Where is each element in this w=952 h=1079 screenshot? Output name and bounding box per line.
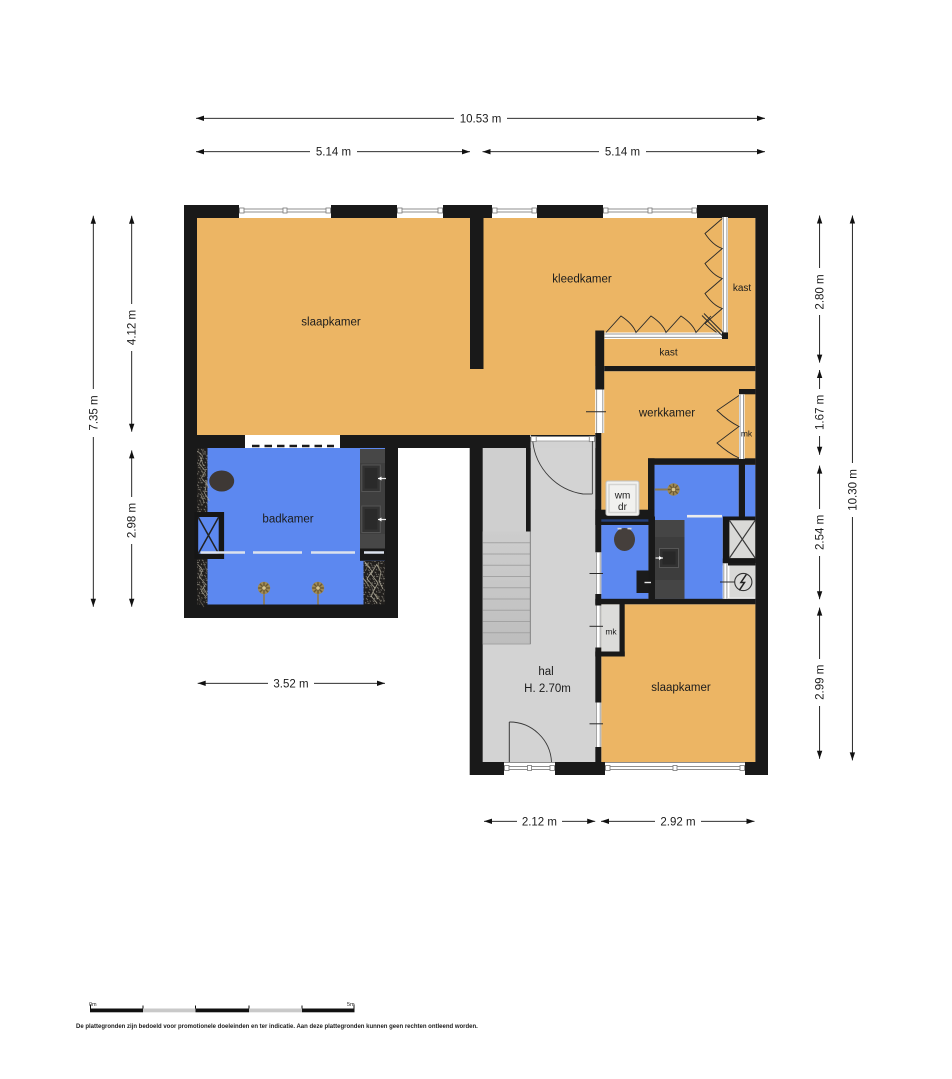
svg-text:kast: kast	[659, 348, 678, 359]
svg-text:dr: dr	[618, 502, 628, 513]
svg-text:2.80 m: 2.80 m	[815, 274, 827, 309]
svg-text:werkkamer: werkkamer	[638, 408, 695, 420]
svg-text:7.35 m: 7.35 m	[88, 395, 100, 430]
svg-text:5m: 5m	[347, 1002, 355, 1008]
svg-text:5.14 m: 5.14 m	[605, 147, 640, 159]
svg-text:wm: wm	[614, 491, 631, 502]
svg-text:3.52 m: 3.52 m	[273, 678, 308, 690]
svg-text:slaapkamer: slaapkamer	[301, 317, 361, 329]
svg-text:5.14 m: 5.14 m	[316, 147, 351, 159]
svg-text:kleedkamer: kleedkamer	[552, 274, 612, 286]
svg-text:A·BO: A·BO	[199, 598, 208, 602]
svg-text:H. 2.70m: H. 2.70m	[524, 683, 571, 695]
svg-text:De plattegronden zijn bedoeld: De plattegronden zijn bedoeld voor promo…	[76, 1024, 478, 1030]
svg-text:0m: 0m	[89, 1002, 97, 1008]
svg-text:badkamer: badkamer	[262, 514, 313, 526]
svg-text:slaapkamer: slaapkamer	[651, 682, 711, 694]
svg-text:2.12 m: 2.12 m	[522, 816, 557, 828]
svg-text:10.53 m: 10.53 m	[460, 113, 502, 125]
svg-text:mk: mk	[605, 627, 617, 637]
svg-text:hal: hal	[538, 666, 553, 678]
svg-text:4.12 m: 4.12 m	[127, 310, 139, 345]
svg-text:2.54 m: 2.54 m	[815, 515, 827, 550]
svg-text:mk: mk	[741, 429, 753, 439]
svg-text:10.30 m: 10.30 m	[847, 469, 859, 511]
svg-text:2.92 m: 2.92 m	[660, 816, 695, 828]
svg-text:2.99 m: 2.99 m	[815, 665, 827, 700]
svg-text:2.98 m: 2.98 m	[127, 503, 139, 538]
svg-text:kast: kast	[733, 283, 752, 294]
svg-text:1.67 m: 1.67 m	[815, 395, 827, 430]
